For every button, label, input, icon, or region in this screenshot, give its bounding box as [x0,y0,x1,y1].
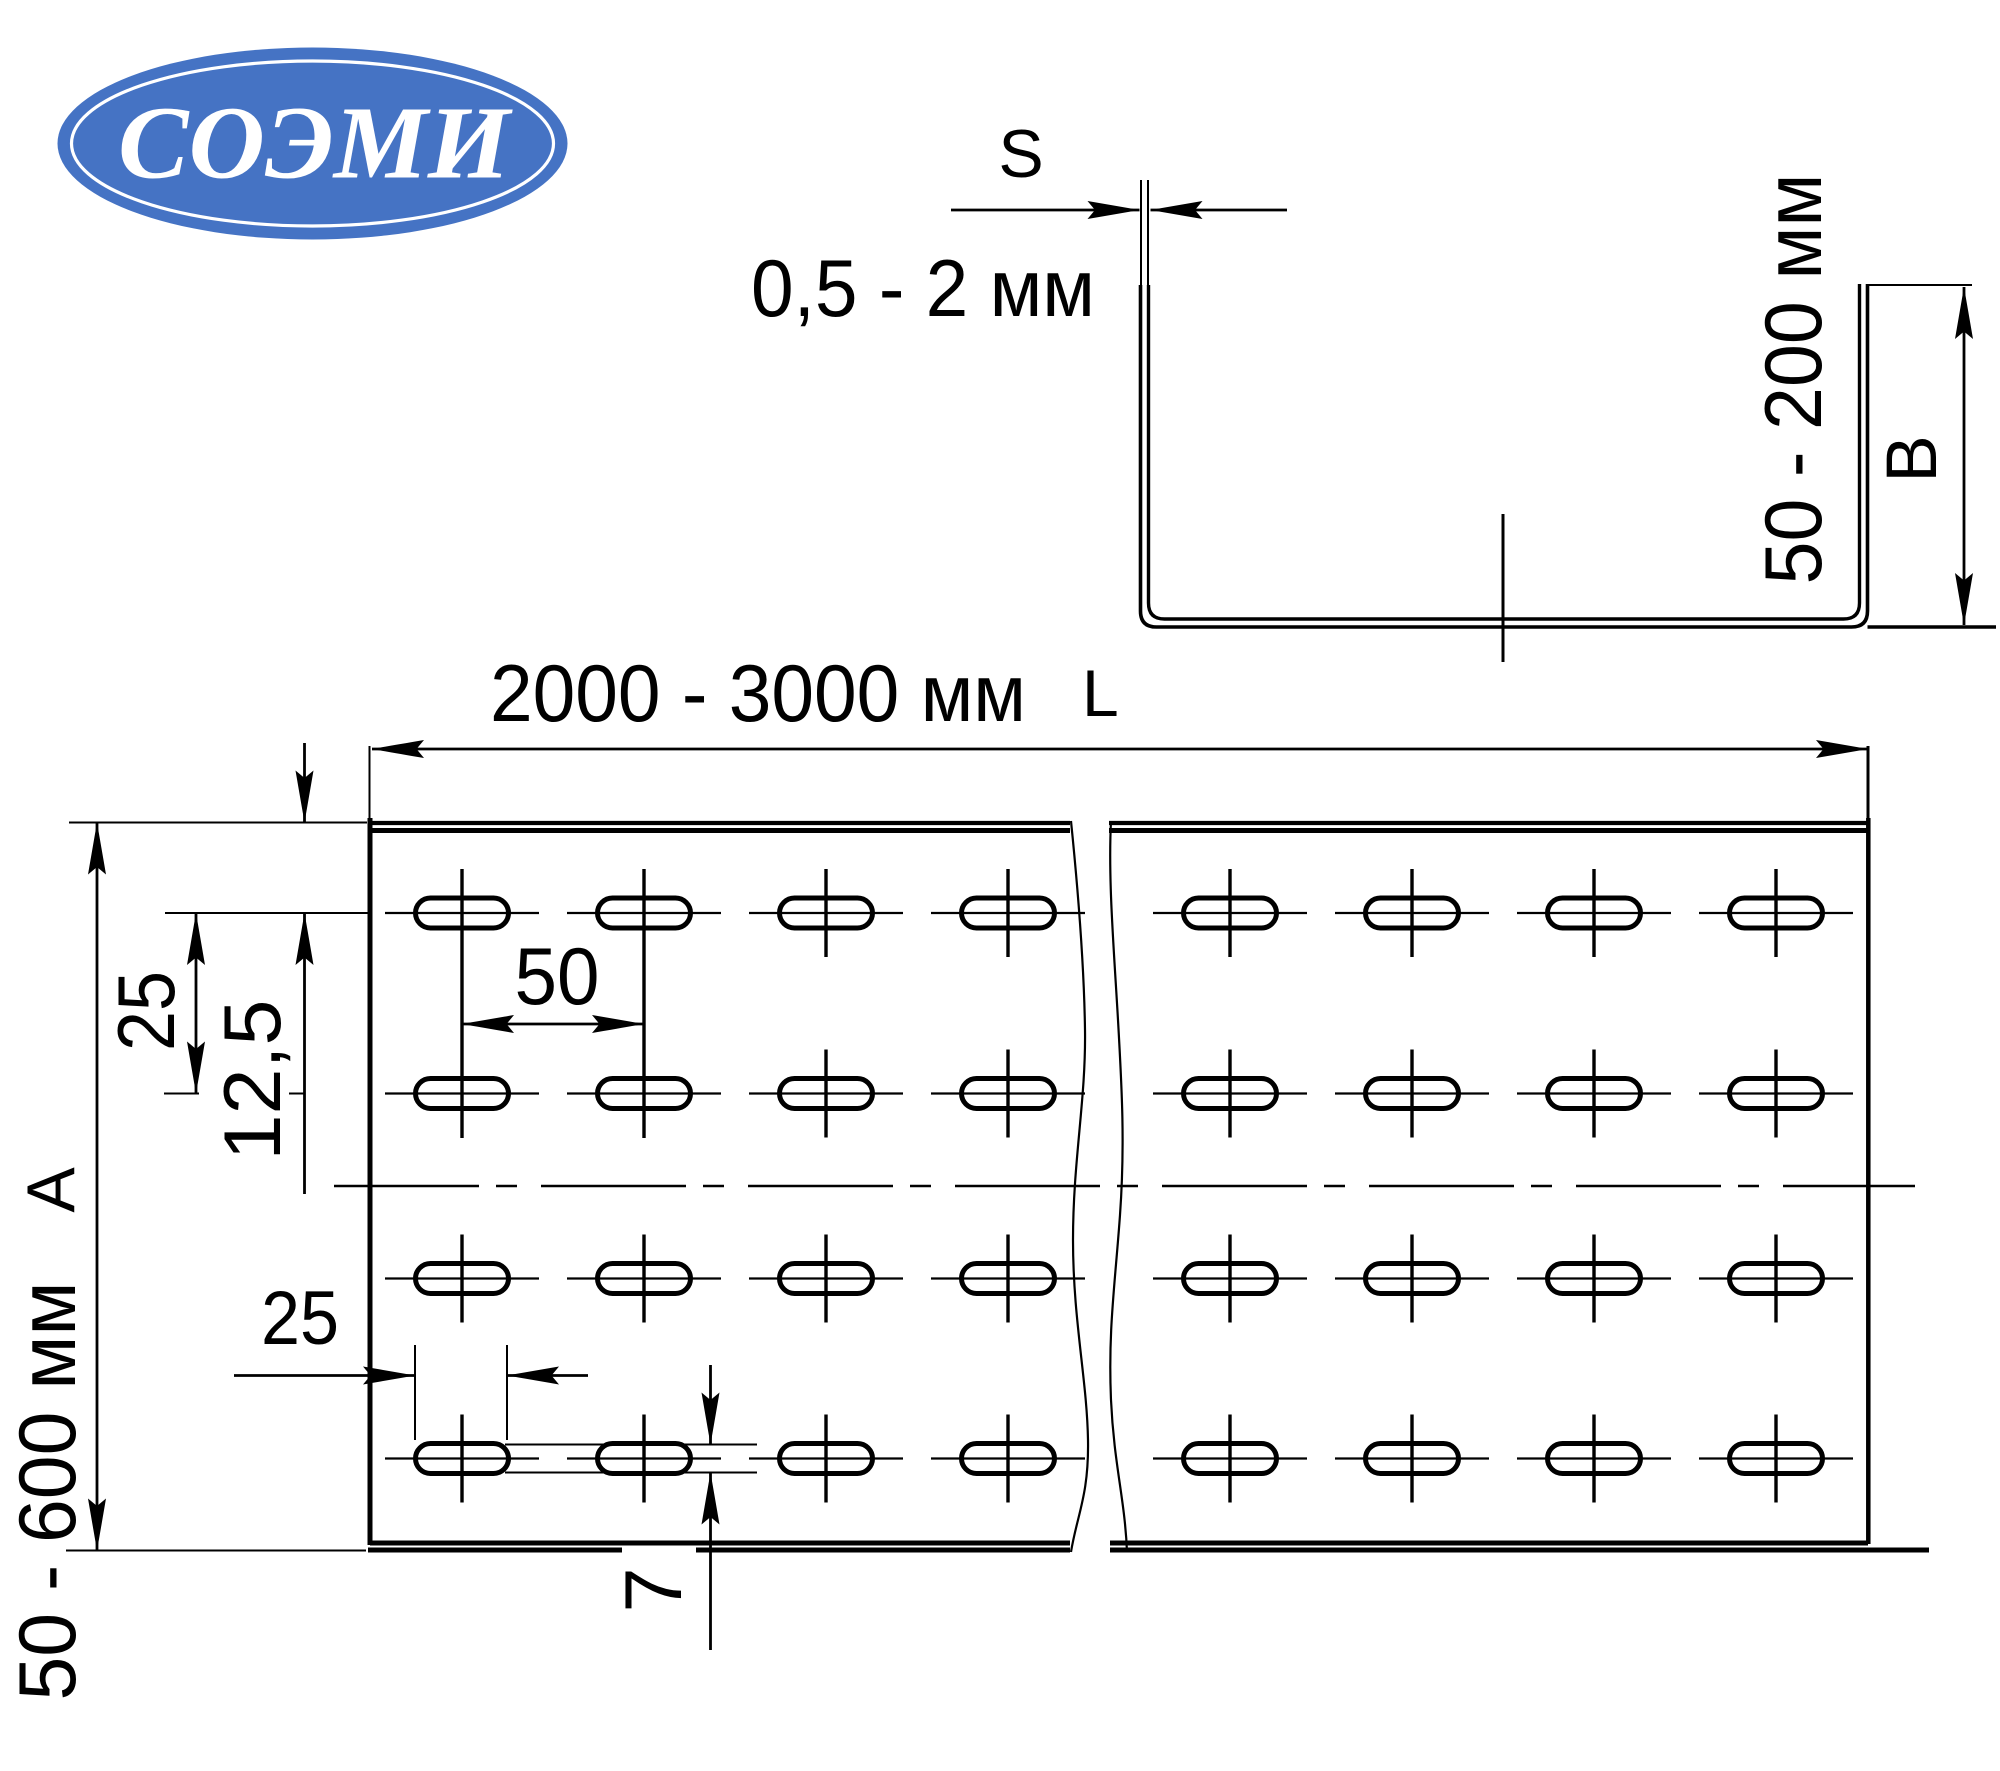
svg-text:50 - 200 мм: 50 - 200 мм [1749,174,1839,585]
svg-text:A: A [13,1167,89,1213]
svg-text:7: 7 [609,1567,699,1612]
svg-text:S: S [998,116,1043,192]
svg-text:50 - 600 мм: 50 - 600 мм [3,1282,93,1701]
svg-text:50: 50 [515,932,600,1022]
svg-text:12,5: 12,5 [208,1000,298,1161]
svg-text:L: L [1082,656,1119,730]
svg-text:B: B [1873,435,1952,482]
svg-text:25: 25 [102,971,192,1051]
svg-text:25: 25 [261,1276,339,1361]
svg-text:0,5 - 2 мм: 0,5 - 2 мм [751,244,1095,334]
svg-text:СОЭМИ: СОЭМИ [118,86,513,201]
svg-text:2000 - 3000 мм: 2000 - 3000 мм [490,649,1026,739]
